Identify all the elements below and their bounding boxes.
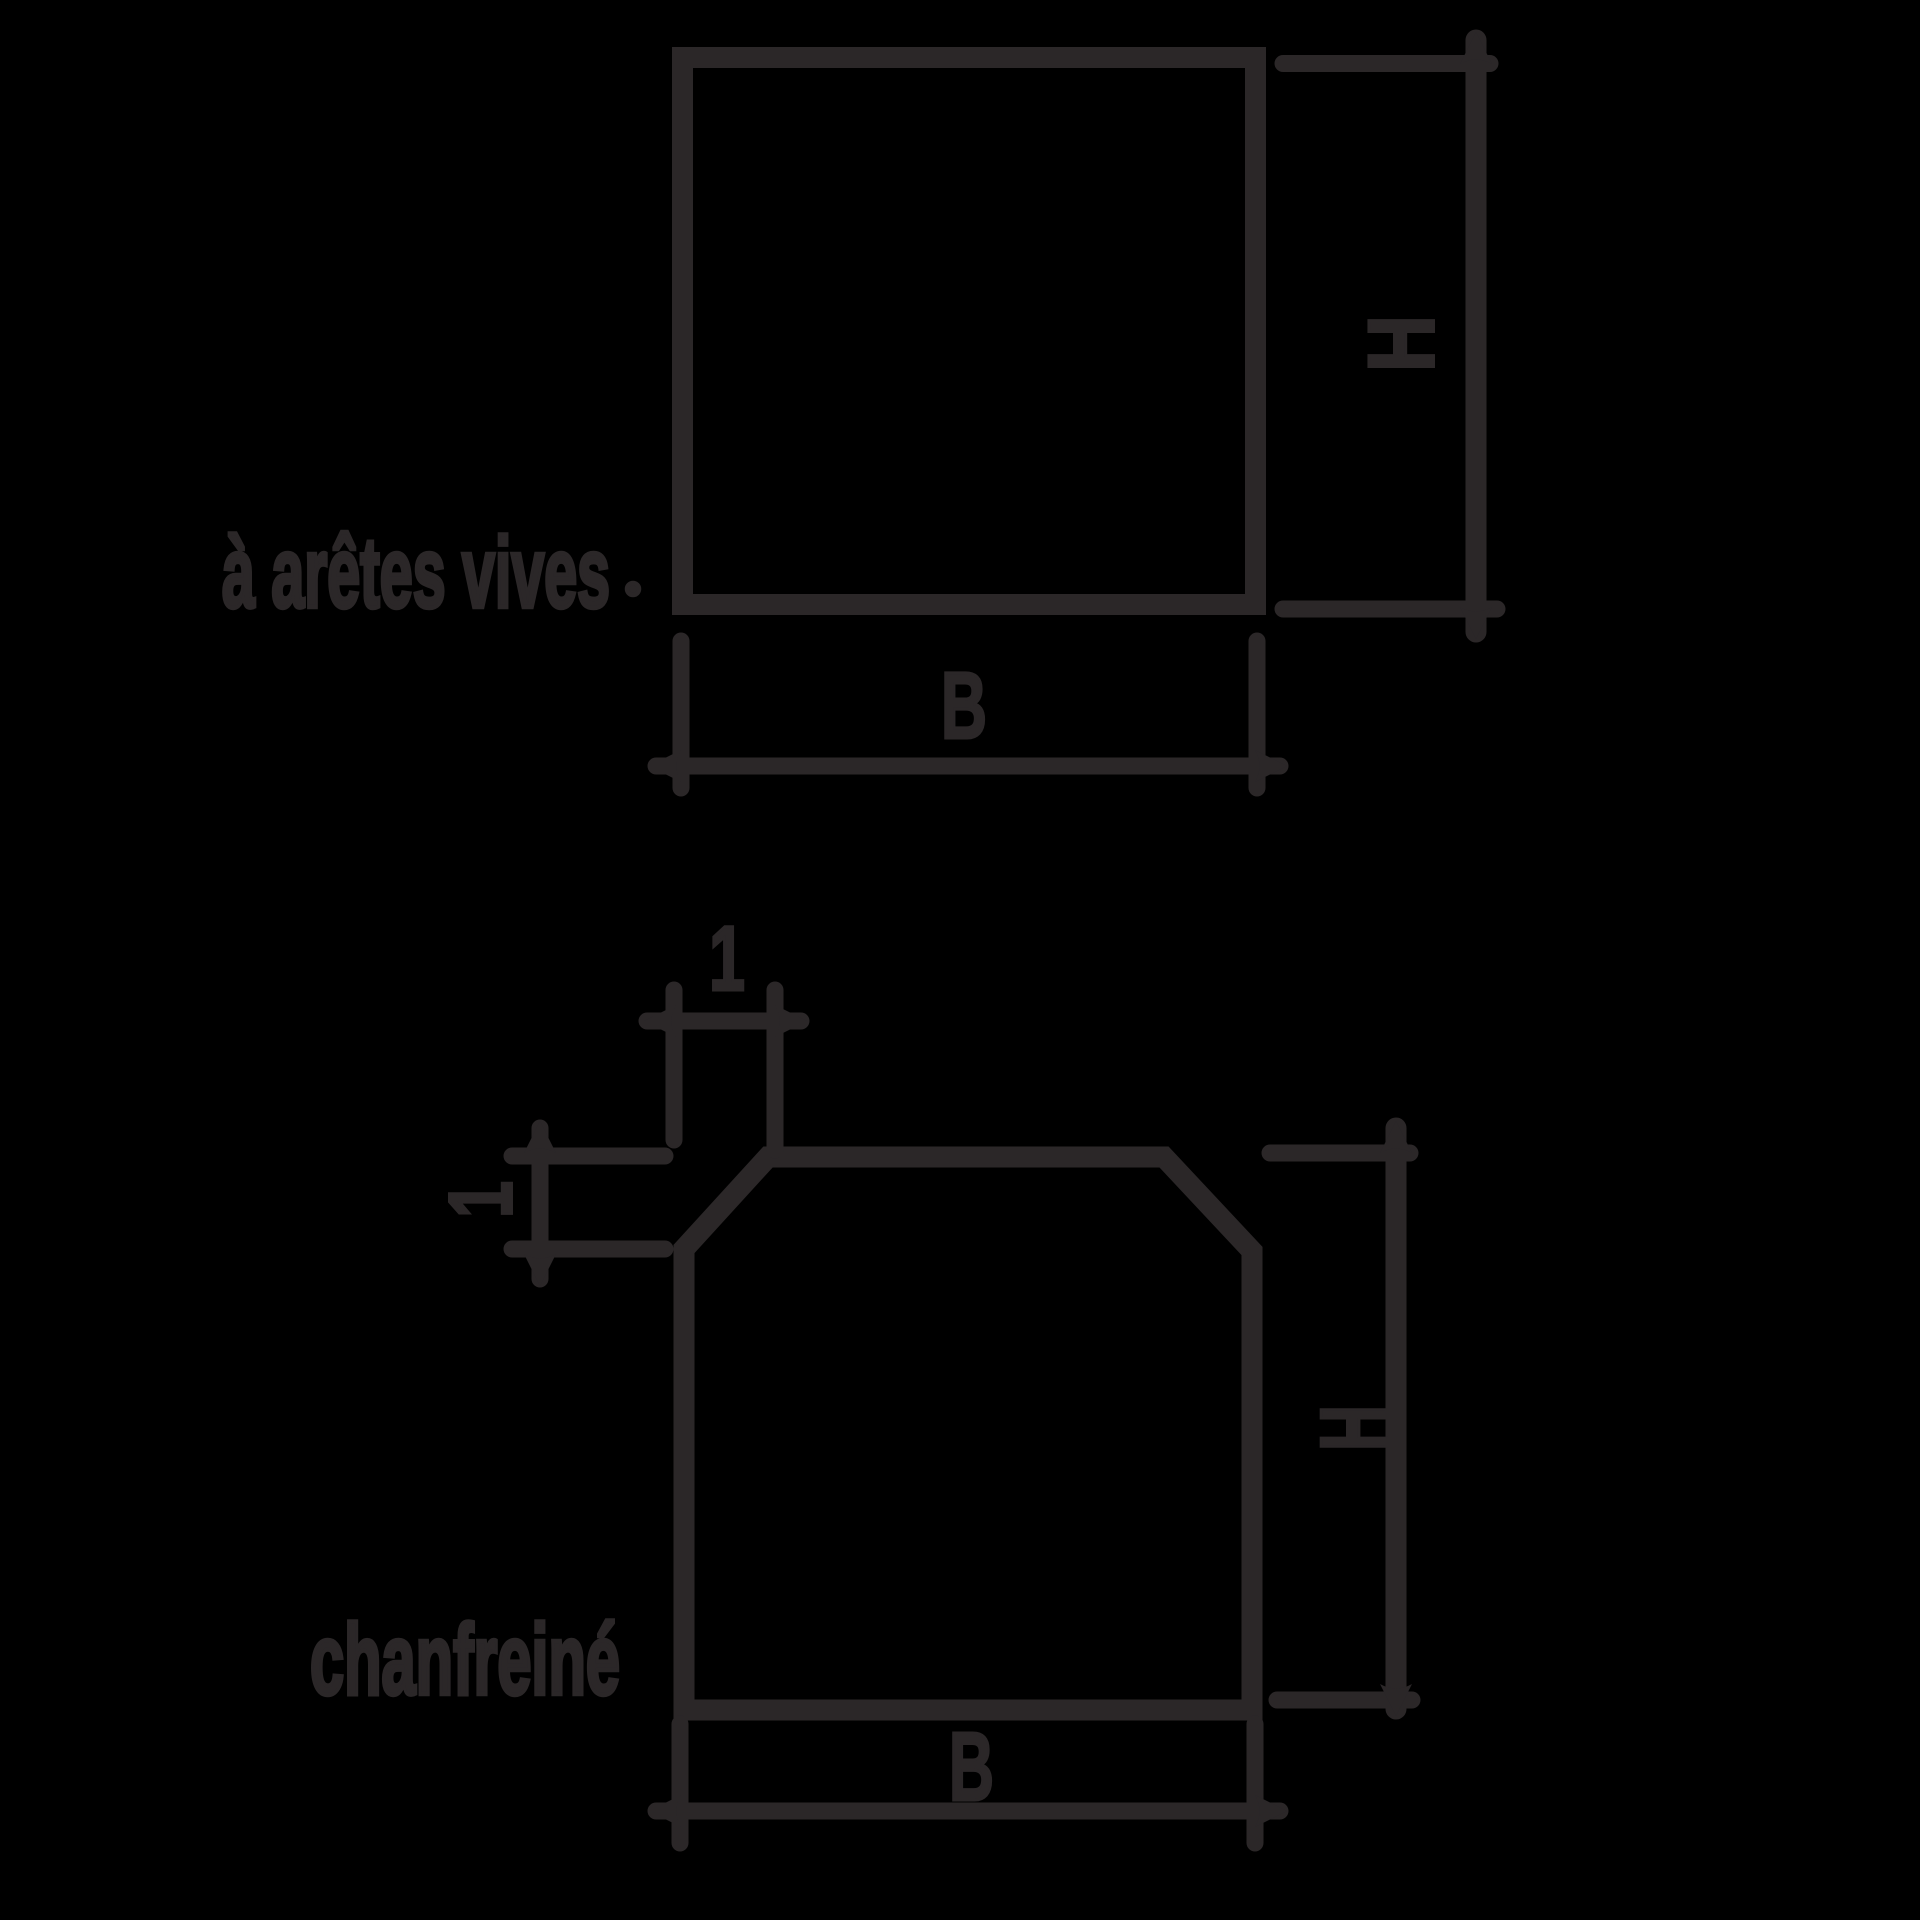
- svg-text:chanfreiné: chanfreiné: [310, 1604, 620, 1716]
- svg-text:à arêtes vives: à arêtes vives: [222, 517, 610, 629]
- svg-text:B: B: [941, 653, 987, 759]
- svg-text:H: H: [1349, 315, 1454, 372]
- svg-text:1: 1: [709, 908, 745, 1010]
- svg-text:B: B: [949, 1712, 994, 1821]
- svg-text:1: 1: [432, 1181, 532, 1218]
- svg-text:H: H: [1301, 1405, 1408, 1451]
